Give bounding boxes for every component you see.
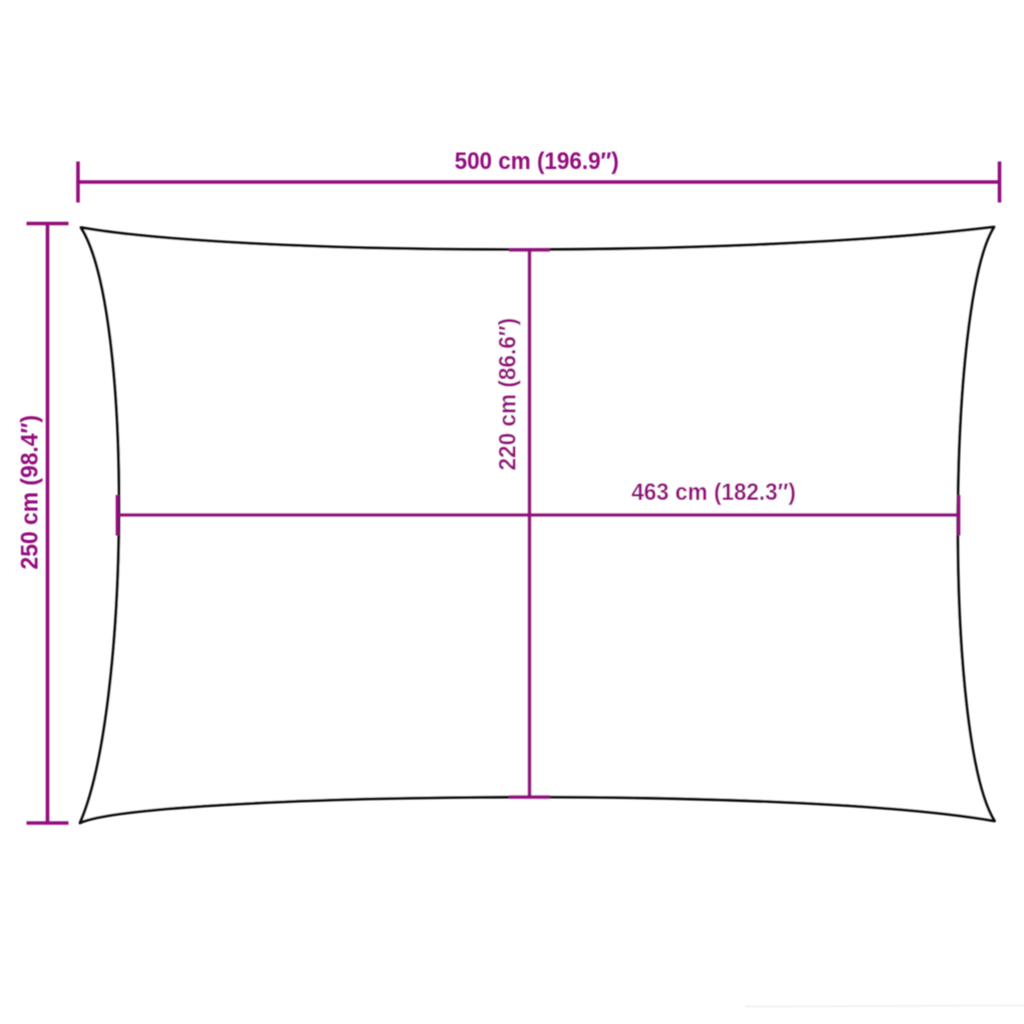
svg-text:500 cm (196.9″): 500 cm (196.9″)	[455, 148, 619, 175]
svg-text:220 cm (86.6″): 220 cm (86.6″)	[495, 318, 522, 471]
svg-text:250 cm (98.4″): 250 cm (98.4″)	[17, 415, 44, 570]
svg-text:463 cm (182.3″): 463 cm (182.3″)	[631, 479, 796, 506]
